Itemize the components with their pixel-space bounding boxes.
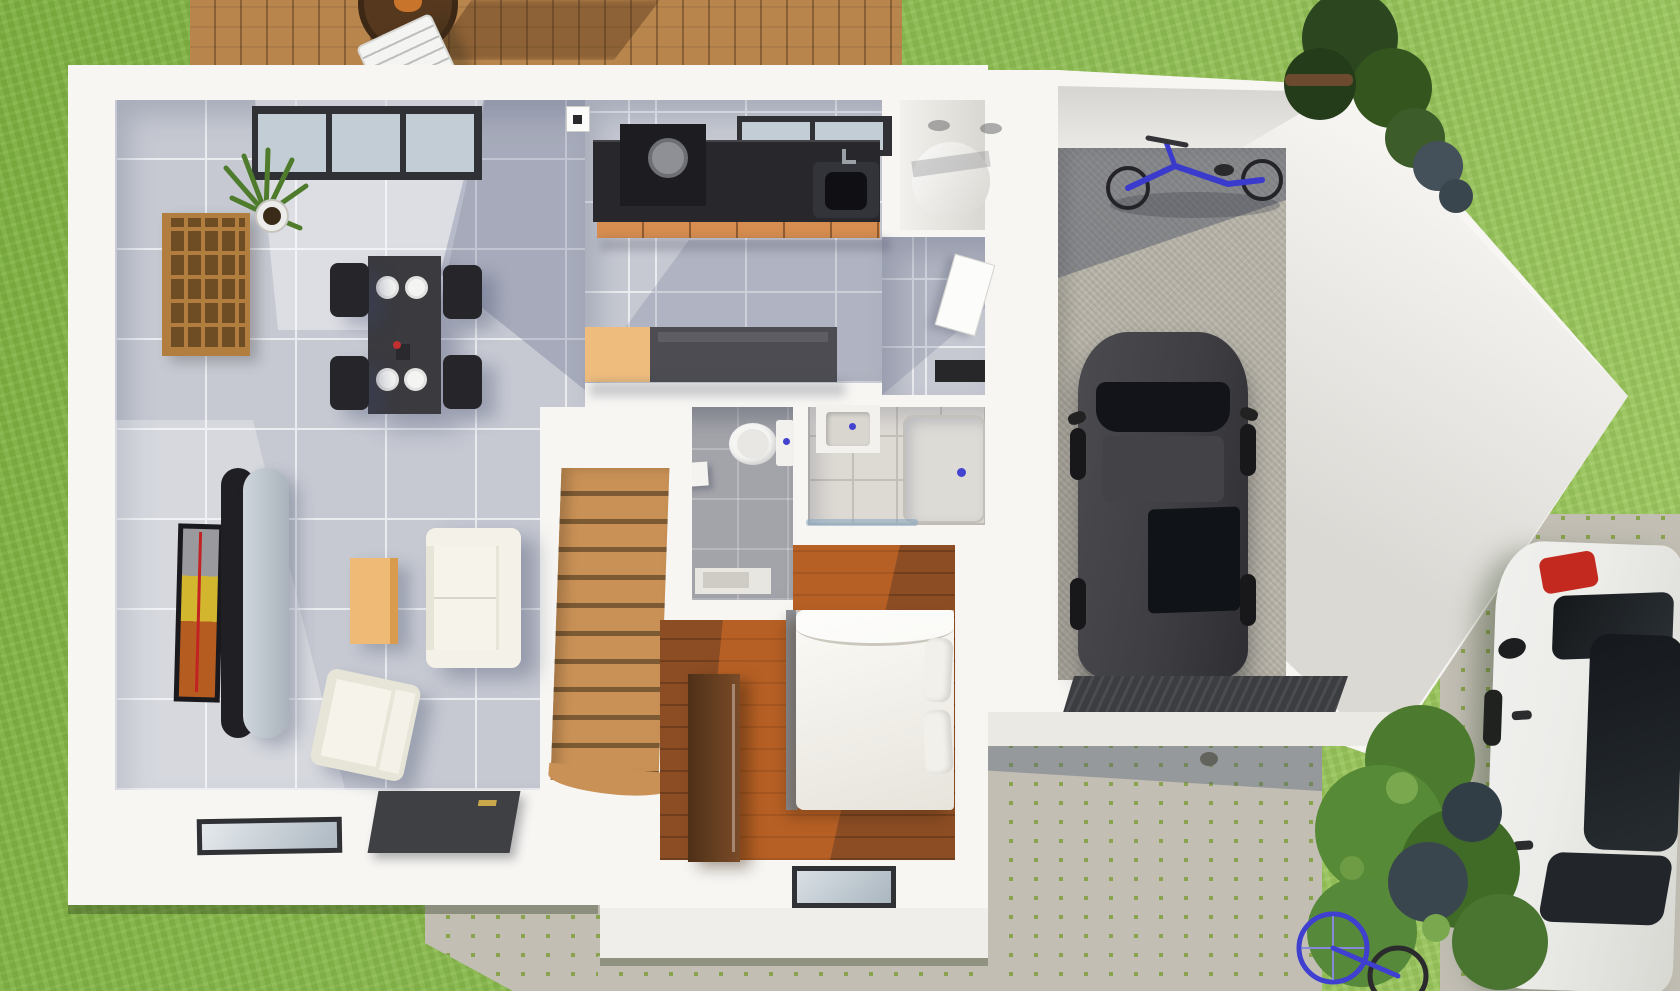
potted-plant: [226, 150, 306, 232]
floorplan-render: [0, 0, 1680, 991]
plant-soil: [263, 207, 281, 225]
tree: [1284, 0, 1473, 213]
hedge-strip: [1285, 74, 1353, 86]
garage-bicycle: [1108, 138, 1281, 218]
vegetation-overlay: [0, 0, 1680, 991]
